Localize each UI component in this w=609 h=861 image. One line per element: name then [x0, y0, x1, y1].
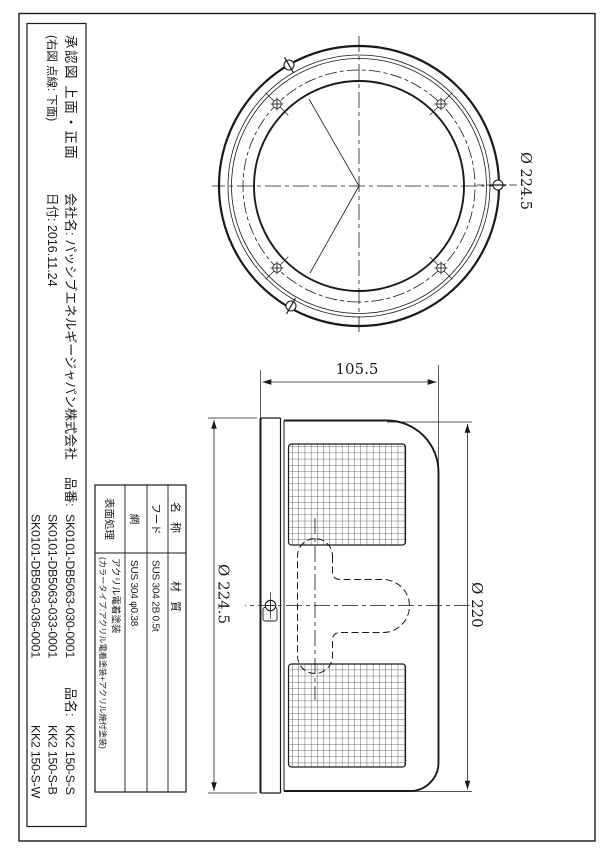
part-name: KK2 150-S-S — [63, 725, 77, 795]
depth-dimension-label: 105.5 — [336, 360, 379, 378]
top-view-diameter-label: Ø 224.5 — [517, 152, 533, 210]
table-cell-material: アクリル電着塗装 — [110, 558, 122, 634]
drawing-date: 日付: 2016.11.24 — [45, 193, 59, 287]
mesh-panel-left — [289, 444, 406, 545]
table-cell-name: 表面処理 — [103, 498, 116, 540]
drawing-sheet: Ø 224.5 — [0, 0, 609, 861]
company-name: 会社名: パッシブエネルギージャパン株式会社 — [63, 193, 78, 460]
radial-line-right — [310, 186, 359, 273]
dimension-flange-dia: Ø 224.5 — [208, 418, 257, 793]
part-name-label: 品名: — [63, 687, 78, 717]
table-cell-name: フード — [150, 503, 162, 535]
table-cell-material-note: (カラータイプ:アクリル電着塗装+アクリル焼付塗装) — [98, 557, 108, 749]
landscape-canvas: Ø 224.5 — [0, 0, 609, 861]
slotted-screws — [284, 57, 517, 314]
front-view: 105.5 Ø 220 Ø 224.5 — [208, 360, 486, 793]
radial-line-left — [309, 99, 359, 186]
approval-note: (右図 点線: 下面) — [45, 35, 59, 121]
table-cell-material: SUS 304 2B 0.5t — [150, 560, 161, 632]
flange-screw — [263, 592, 277, 621]
part-number: SK0101-DB5063-036-0001 — [29, 514, 43, 658]
hidden-duct-outline — [298, 539, 410, 674]
part-number: SK0101-DB5063-030-0001 — [63, 514, 77, 658]
part-name: KK2 150-S-W — [29, 725, 43, 799]
table-header-material: 材 質 — [169, 581, 183, 615]
top-view: Ø 224.5 — [212, 36, 533, 333]
flange-diameter-label: Ø 224.5 — [215, 564, 233, 624]
table-cell-name: 網 — [128, 514, 141, 525]
body-diameter-label: Ø 220 — [468, 582, 486, 628]
title-block: 承認図 上面・正面 (右図 点線: 下面) 会社名: パッシブエネルギージャパン… — [27, 24, 86, 827]
table-cell-material: SUS 304 φ0.38 — [128, 560, 139, 627]
part-number: SK0101-DB5063-033-0001 — [46, 514, 60, 658]
table-header-name: 名 称 — [169, 502, 183, 536]
mesh-panel-right — [289, 664, 406, 767]
engineering-drawing: Ø 224.5 — [0, 0, 609, 861]
parts-table: 名 称 材 質 フード SUS 304 2B 0.5t 網 SUS 304 φ0… — [95, 485, 186, 792]
approval-title: 承認図 上面・正面 — [63, 35, 78, 160]
part-name: KK2 150-S-B — [46, 725, 60, 795]
part-number-label: 品番: — [63, 477, 78, 507]
